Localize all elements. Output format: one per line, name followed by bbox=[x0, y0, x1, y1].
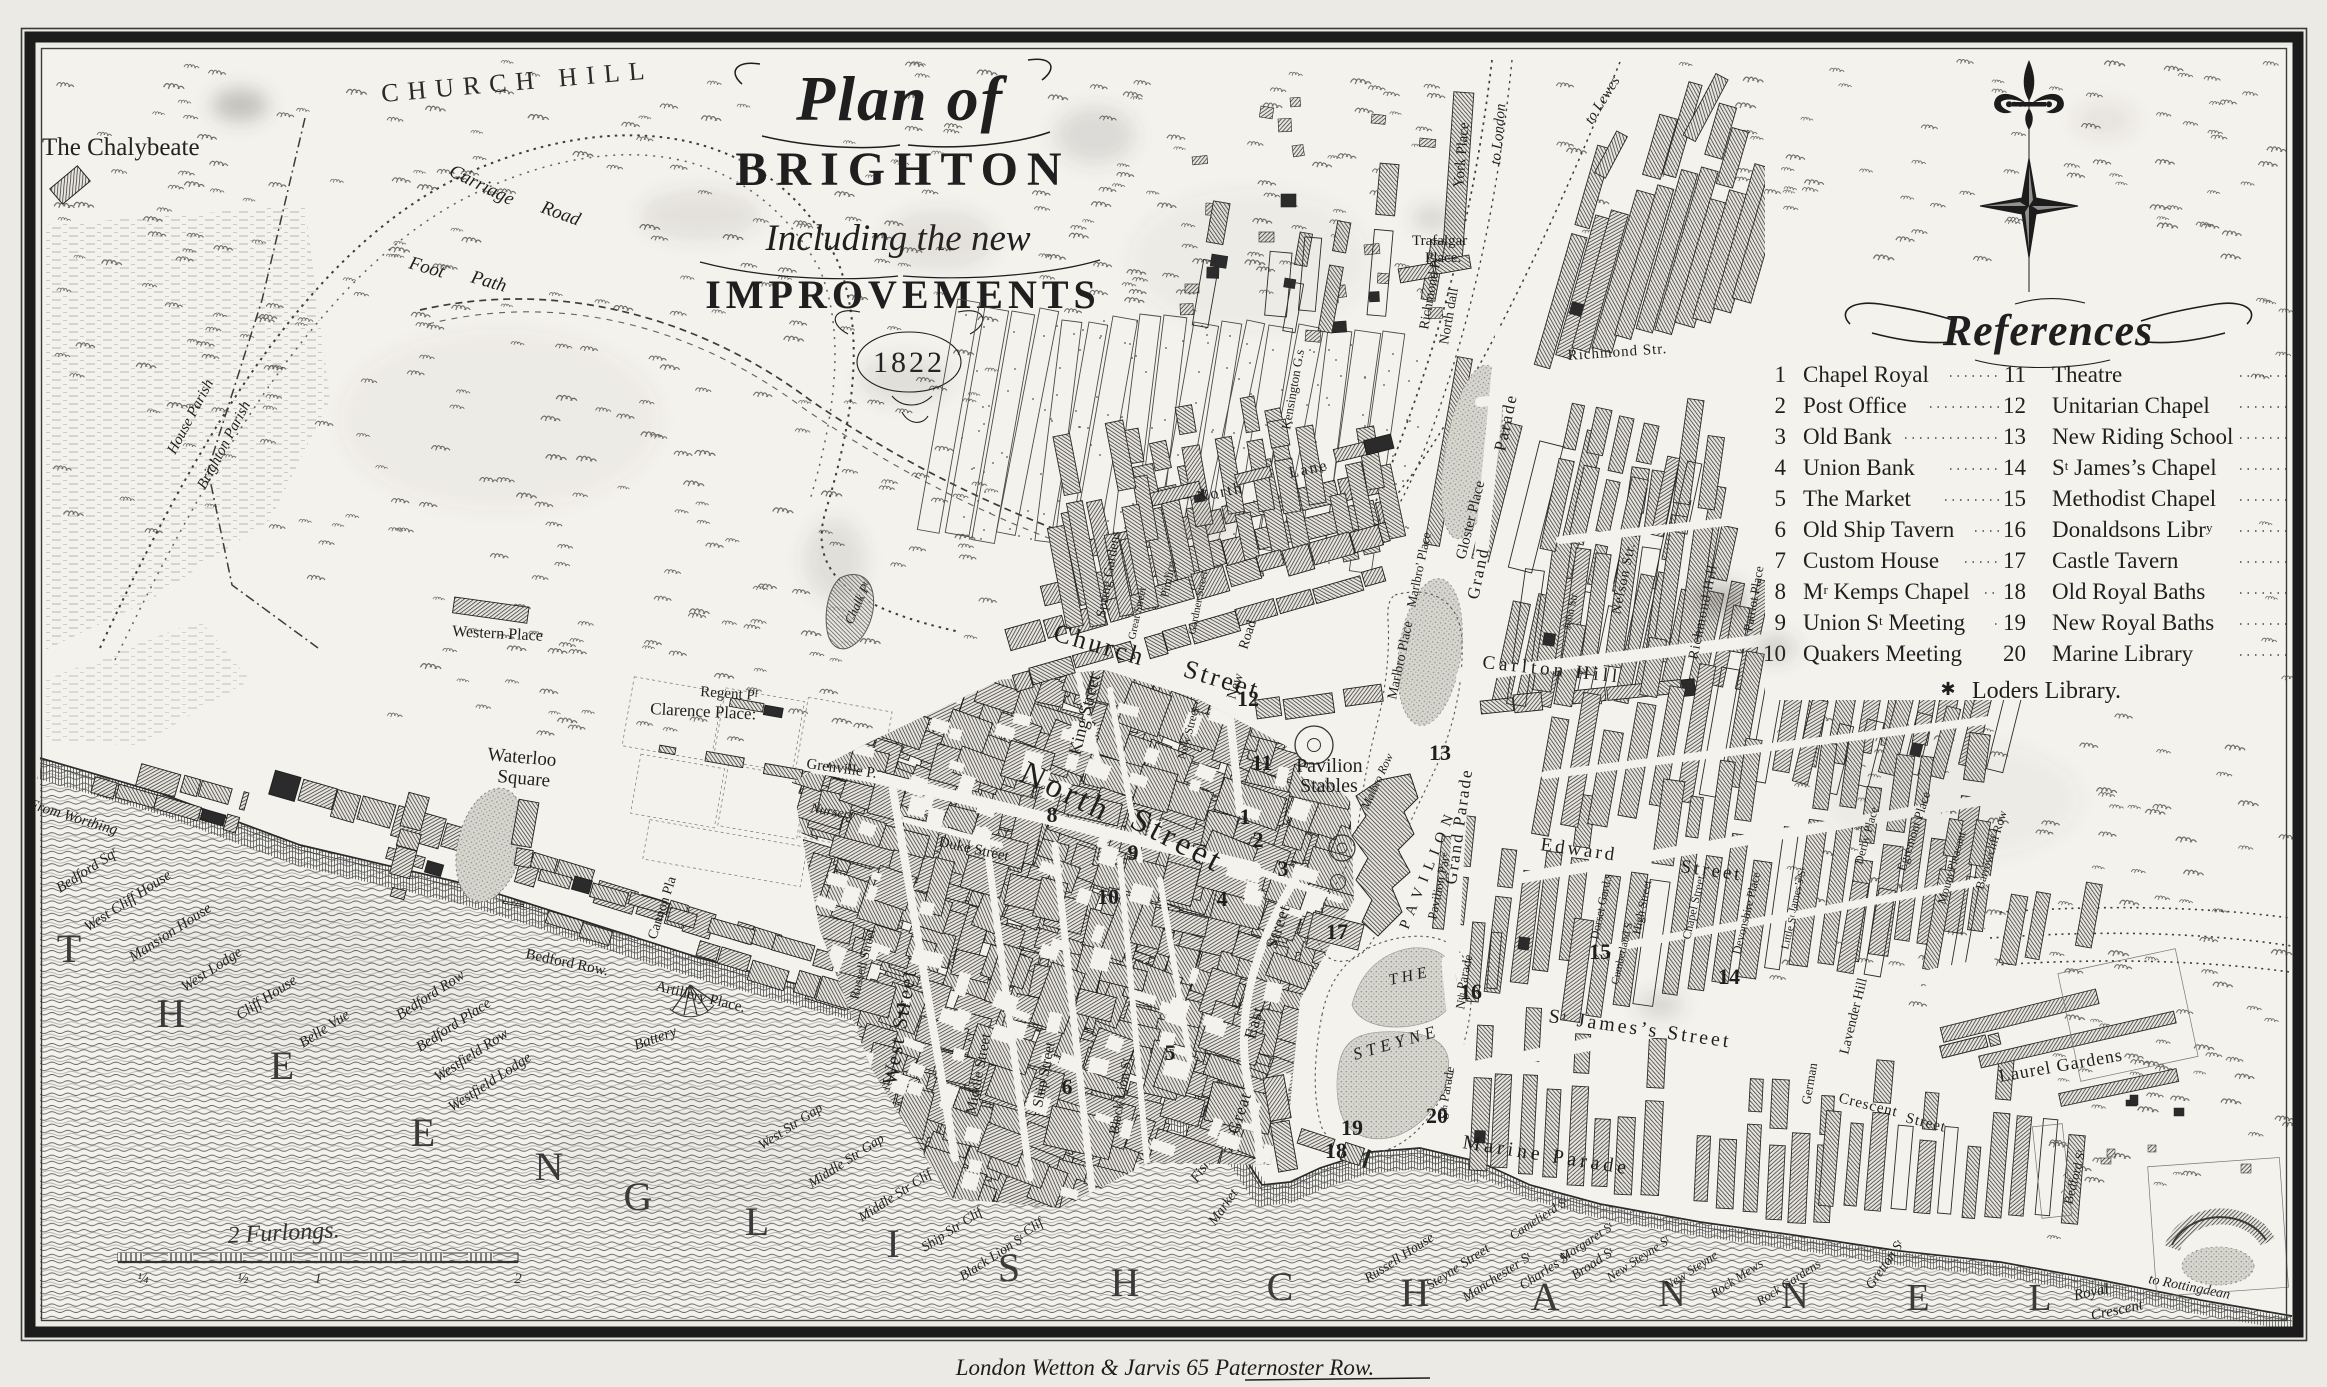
svg-text:7: 7 bbox=[1775, 548, 1787, 573]
svg-text:15: 15 bbox=[2003, 486, 2026, 511]
svg-text:Castle Tavern: Castle Tavern bbox=[2052, 548, 2179, 573]
svg-text:Trafalgar: Trafalgar bbox=[1412, 233, 1467, 249]
svg-text:15: 15 bbox=[1589, 939, 1611, 964]
svg-text:New Royal Baths: New Royal Baths bbox=[2052, 610, 2214, 635]
svg-text:References: References bbox=[1942, 306, 2153, 355]
svg-text:Custom House: Custom House bbox=[1803, 548, 1939, 573]
svg-text:Old Bank: Old Bank bbox=[1803, 424, 1892, 449]
svg-text:7: 7 bbox=[896, 998, 907, 1023]
svg-text:The Market: The Market bbox=[1803, 486, 1912, 511]
svg-text:Post Office: Post Office bbox=[1803, 393, 1907, 418]
svg-text:19: 19 bbox=[2003, 610, 2026, 635]
svg-text:11: 11 bbox=[2004, 362, 2026, 387]
svg-text:I: I bbox=[886, 1221, 899, 1266]
svg-text:Union St Meeting: Union St Meeting bbox=[1803, 610, 1966, 635]
svg-text:Stables: Stables bbox=[1300, 775, 1358, 797]
svg-text:Mr Kemps Chapel: Mr Kemps Chapel bbox=[1803, 579, 1970, 604]
svg-text:4: 4 bbox=[1217, 886, 1228, 911]
svg-text:6: 6 bbox=[1775, 517, 1787, 542]
svg-text:9: 9 bbox=[1128, 840, 1139, 865]
svg-text:13: 13 bbox=[2003, 424, 2026, 449]
svg-text:St James’s Chapel: St James’s Chapel bbox=[2052, 455, 2217, 480]
svg-text:3: 3 bbox=[1775, 424, 1787, 449]
svg-text:T: T bbox=[57, 926, 81, 971]
svg-text:Chapel Royal: Chapel Royal bbox=[1803, 362, 1929, 387]
svg-text:¼: ¼ bbox=[137, 1271, 148, 1287]
svg-text:Donaldsons Libry: Donaldsons Libry bbox=[2052, 517, 2213, 542]
svg-text:11: 11 bbox=[1252, 750, 1273, 775]
svg-text:14: 14 bbox=[1718, 964, 1740, 989]
svg-text:2: 2 bbox=[514, 1271, 522, 1287]
svg-text:9: 9 bbox=[1775, 610, 1787, 635]
svg-text:Marine Library: Marine Library bbox=[2052, 641, 2194, 666]
svg-text:12: 12 bbox=[2003, 393, 2026, 418]
svg-text:8: 8 bbox=[1775, 579, 1787, 604]
svg-text:20: 20 bbox=[1426, 1103, 1448, 1128]
svg-text:14: 14 bbox=[2003, 455, 2027, 480]
svg-text:✱: ✱ bbox=[1940, 679, 1955, 699]
svg-text:Union Bank: Union Bank bbox=[1803, 455, 1915, 480]
svg-text:17: 17 bbox=[1326, 919, 1348, 944]
svg-text:18: 18 bbox=[2003, 579, 2026, 604]
svg-text:BRIGHTON: BRIGHTON bbox=[735, 143, 1070, 196]
svg-text:Methodist Chapel: Methodist Chapel bbox=[2052, 486, 2216, 511]
svg-text:Pavilion: Pavilion bbox=[1296, 755, 1363, 777]
svg-text:2: 2 bbox=[1253, 827, 1264, 852]
svg-text:1: 1 bbox=[314, 1271, 322, 1287]
svg-text:2: 2 bbox=[1775, 393, 1787, 418]
svg-text:13: 13 bbox=[1429, 740, 1451, 765]
svg-text:Plan of: Plan of bbox=[795, 63, 1007, 134]
svg-text:1: 1 bbox=[1240, 804, 1251, 829]
svg-text:H: H bbox=[1111, 1260, 1140, 1305]
svg-text:1: 1 bbox=[1775, 362, 1787, 387]
svg-text:The Chalybeate: The Chalybeate bbox=[42, 134, 200, 161]
svg-text:5: 5 bbox=[1775, 486, 1787, 511]
svg-text:8: 8 bbox=[1047, 802, 1058, 827]
svg-text:18: 18 bbox=[1325, 1138, 1347, 1163]
svg-text:Theatre: Theatre bbox=[2052, 362, 2122, 387]
svg-text:½: ½ bbox=[237, 1271, 248, 1287]
svg-text:12: 12 bbox=[1237, 686, 1259, 711]
svg-text:New Riding School: New Riding School bbox=[2052, 424, 2233, 449]
svg-text:E: E bbox=[411, 1110, 435, 1155]
svg-text:5: 5 bbox=[1165, 1040, 1176, 1065]
svg-text:Old Royal Baths: Old Royal Baths bbox=[2052, 579, 2205, 604]
svg-text:Old Ship Tavern: Old Ship Tavern bbox=[1803, 517, 1955, 542]
svg-text:10: 10 bbox=[1097, 884, 1119, 909]
svg-text:Unitarian Chapel: Unitarian Chapel bbox=[2052, 393, 2210, 418]
svg-text:19: 19 bbox=[1341, 1115, 1363, 1140]
svg-text:16: 16 bbox=[2003, 517, 2026, 542]
svg-text:17: 17 bbox=[2003, 548, 2026, 573]
svg-text:London Wetton & Jarvis 65 Pate: London Wetton & Jarvis 65 Paternoster Ro… bbox=[955, 1355, 1374, 1380]
svg-text:4: 4 bbox=[1775, 455, 1787, 480]
svg-text:20: 20 bbox=[2003, 641, 2026, 666]
svg-text:IMPROVEMENTS: IMPROVEMENTS bbox=[705, 272, 1101, 317]
svg-text:E: E bbox=[1906, 1277, 1929, 1319]
svg-text:6: 6 bbox=[1062, 1074, 1073, 1099]
svg-text:H: H bbox=[1401, 1270, 1430, 1315]
svg-text:3: 3 bbox=[1278, 856, 1289, 881]
svg-text:C: C bbox=[1267, 1264, 1294, 1309]
svg-text:Loders Library.: Loders Library. bbox=[1972, 678, 2121, 704]
svg-text:L: L bbox=[2028, 1277, 2051, 1319]
svg-text:16: 16 bbox=[1460, 979, 1482, 1004]
svg-text:Quakers Meeting: Quakers Meeting bbox=[1803, 641, 1963, 666]
